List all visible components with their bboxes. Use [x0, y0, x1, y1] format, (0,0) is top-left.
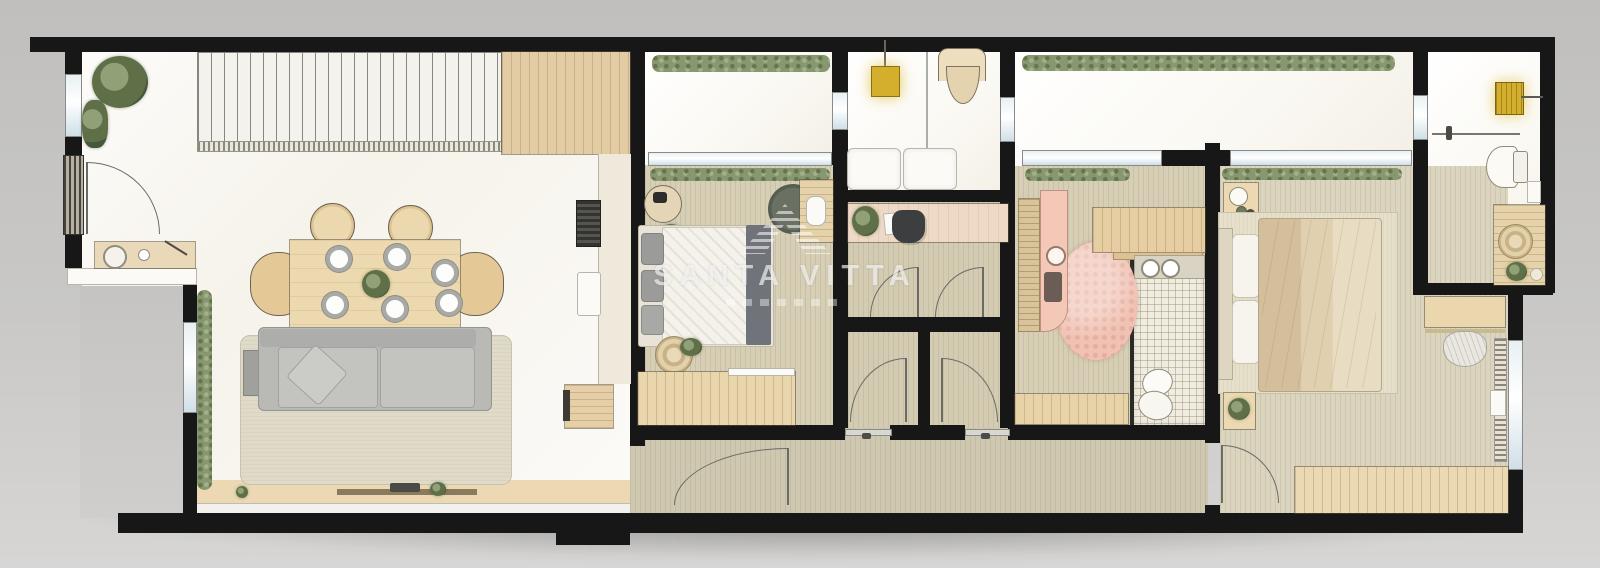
storage-door-leaf-1: [905, 358, 907, 422]
wall-bedroom1-office: [833, 165, 848, 428]
plate-4: [322, 292, 348, 318]
bedside-round-table: [644, 185, 682, 223]
basket-plant: [680, 338, 702, 356]
plate-3: [432, 260, 458, 286]
wall-bottom: [118, 513, 1523, 533]
deck-plant-1: [430, 482, 446, 496]
swing-cord: [884, 40, 886, 68]
nightstand-tray: [1229, 187, 1248, 206]
wall-left-upper-b: [65, 137, 82, 155]
floor-plan-render: SANTA VITTA: [0, 0, 1600, 568]
laundry-sink: [1495, 82, 1524, 115]
window-master-balcony: [1230, 150, 1412, 166]
balcony-2-hedge: [1022, 55, 1395, 71]
entry-counter-bowl: [138, 249, 150, 261]
entry-sink: [103, 245, 127, 269]
window-left-lower: [183, 322, 197, 413]
wall-master-right-b: [1508, 470, 1523, 513]
kitchenette-slat-strip: [1018, 198, 1040, 332]
bathroom-basin-2: [1161, 259, 1180, 278]
office-door-leaf-1: [917, 267, 919, 317]
window-terrace-divider: [1000, 97, 1015, 142]
kitchenette-table: [1093, 208, 1205, 252]
window-kitchenette-balcony: [1022, 150, 1162, 166]
sliding-door-1-knob: [862, 433, 871, 439]
wall-office-storage: [833, 317, 1015, 332]
wall-storage-divider: [918, 332, 930, 428]
service-plant: [1506, 262, 1527, 281]
entry-door-leaf: [86, 162, 88, 234]
plate-1: [326, 246, 352, 272]
wall-terrace-office: [845, 190, 1010, 202]
glass-divider: [926, 52, 928, 150]
wall-top: [30, 37, 1555, 52]
master-door-leaf: [1221, 445, 1223, 503]
window-left-upper: [65, 74, 82, 137]
master-headboard: [1218, 228, 1233, 380]
window-master-right: [1508, 340, 1523, 470]
wall-left-upper-c: [65, 235, 82, 268]
bed-1-pillow-3: [641, 305, 664, 335]
master-desk: [1425, 297, 1505, 327]
kitchenette-cooktop: [1044, 272, 1062, 302]
master-pillow-1: [1232, 234, 1260, 298]
laundry-bar: [1521, 96, 1543, 98]
master-ac-unit: [1490, 390, 1506, 416]
bedside-decor: [653, 192, 667, 203]
office-chair: [892, 210, 925, 243]
nightstand-plant: [1228, 398, 1250, 420]
bed-1-duvet: [662, 227, 748, 345]
window-bedroom1-balcony: [648, 152, 832, 166]
master-chair-clothes: [1443, 331, 1487, 367]
wall-service-left-a: [1413, 37, 1428, 95]
kitchenette-bottom-bench: [1015, 394, 1128, 424]
sofa-seat-2: [380, 347, 475, 408]
left-louver-shutter: [63, 155, 84, 235]
wall-left-upper-a: [65, 50, 82, 74]
daybed-2: [903, 148, 957, 190]
wall-balcony1-terrace-a: [832, 37, 848, 92]
wall-corridor-b: [890, 425, 965, 440]
service-shelf: [1527, 181, 1541, 203]
office-plant: [852, 206, 879, 236]
kitchenette-sink: [1046, 246, 1066, 266]
bedroom-1-shelf: [728, 368, 795, 376]
storage-door-leaf-2: [941, 358, 943, 422]
corner-plant-small: [82, 100, 108, 148]
service-decor-ball: [1530, 268, 1543, 281]
background-notch: [80, 286, 183, 518]
office-door-leaf-2: [982, 267, 984, 317]
tv: [390, 483, 420, 492]
stove: [576, 200, 601, 247]
yellow-swing-seat: [871, 66, 900, 97]
kitchenette-plants: [1025, 168, 1130, 181]
master-wardrobe: [1295, 467, 1508, 513]
sliding-door-2-knob: [981, 433, 990, 439]
kitchen-top-cabinets: [502, 52, 630, 154]
wall-bottom-stub: [556, 520, 630, 545]
kitchen-island-handle: [563, 390, 570, 421]
kitchen-side-counter: [598, 154, 631, 384]
wall-master-right-a: [1508, 293, 1523, 340]
wardrobe-slat-run: [197, 52, 502, 142]
wall-terrace-divider-stub: [1000, 37, 1015, 97]
kitchen-sink-unit: [577, 272, 601, 316]
master-duvet-folds: [1262, 220, 1376, 388]
bedroom-1-wardrobe: [638, 372, 795, 425]
bedroom-1-chair: [806, 196, 826, 226]
table-centerpiece-plant: [362, 270, 390, 298]
plate-6: [436, 290, 462, 316]
service-chair: [1498, 224, 1533, 259]
shelf-dash-strip: [197, 141, 502, 152]
corridor-door-leaf: [787, 448, 789, 505]
wall-corridor-a: [630, 425, 845, 440]
balcony-1-hedge: [652, 55, 830, 72]
window-balcony1-terrace: [832, 92, 848, 130]
plate-5: [382, 296, 408, 322]
wall-balcony1-terrace-b: [832, 130, 848, 165]
sofa-back-cushions: [260, 329, 476, 347]
wall-service-left-b: [1413, 140, 1428, 293]
wall-corridor-c: [1008, 425, 1205, 440]
bed-1-pillow-2: [641, 270, 664, 302]
wall-kitchenette-master-b: [1205, 505, 1220, 515]
clothespin: [1446, 126, 1452, 140]
daybed-1: [847, 148, 901, 190]
left-ledge: [67, 268, 197, 285]
wall-office-kitchenette: [1000, 142, 1015, 428]
wall-left-lower-a: [183, 285, 197, 322]
master-pillow-2: [1232, 300, 1260, 364]
deck-plant-2: [236, 486, 248, 498]
bathroom-basin-1: [1141, 259, 1160, 278]
wall-left-lower-b: [183, 413, 197, 513]
left-vine-strip: [197, 290, 212, 490]
plate-2: [384, 244, 410, 270]
kitchen-island: [565, 385, 613, 428]
service-toilet-tank: [1513, 151, 1528, 183]
bed-1-pillow-1: [641, 233, 664, 265]
master-plants: [1222, 168, 1402, 180]
window-service-left: [1413, 95, 1428, 140]
bed-1-runner: [746, 225, 771, 345]
